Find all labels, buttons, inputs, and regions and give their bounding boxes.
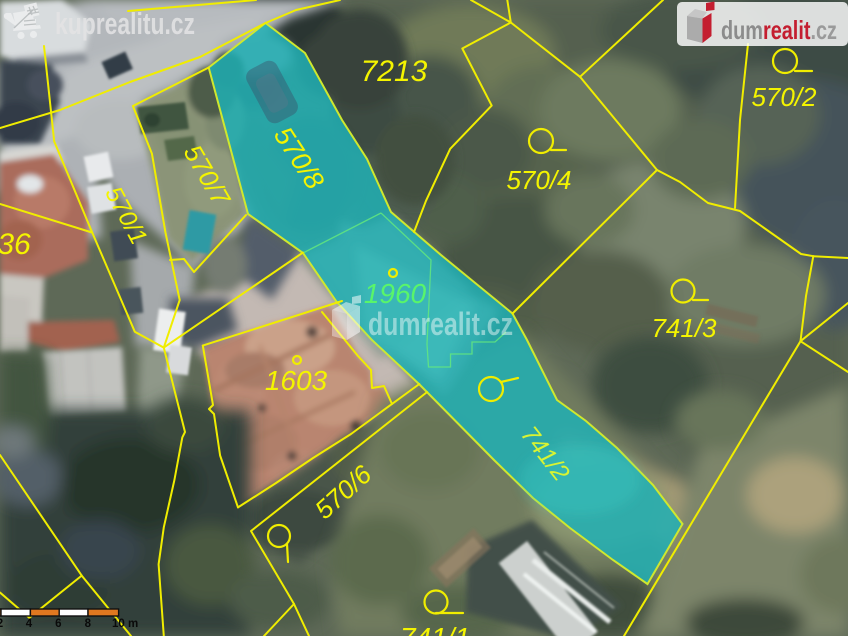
svg-text:570/4: 570/4 [506,165,571,195]
svg-text:570/2: 570/2 [751,82,817,112]
svg-text:dumrealit.cz: dumrealit.cz [721,15,837,45]
svg-text:36: 36 [0,228,31,261]
svg-text:6: 6 [55,618,61,630]
svg-text:2: 2 [0,618,3,630]
svg-text:dumrealit.cz: dumrealit.cz [368,306,513,342]
svg-text:10 m: 10 m [112,618,138,630]
svg-text:7213: 7213 [361,55,428,88]
svg-text:1603: 1603 [265,365,328,396]
svg-text:741/3: 741/3 [651,313,717,343]
svg-text:741/1: 741/1 [400,622,470,636]
svg-text:4: 4 [26,618,33,630]
svg-text:1960: 1960 [364,278,427,309]
svg-text:8: 8 [85,618,92,630]
svg-text:kuprealitu.cz: kuprealitu.cz [55,6,195,41]
